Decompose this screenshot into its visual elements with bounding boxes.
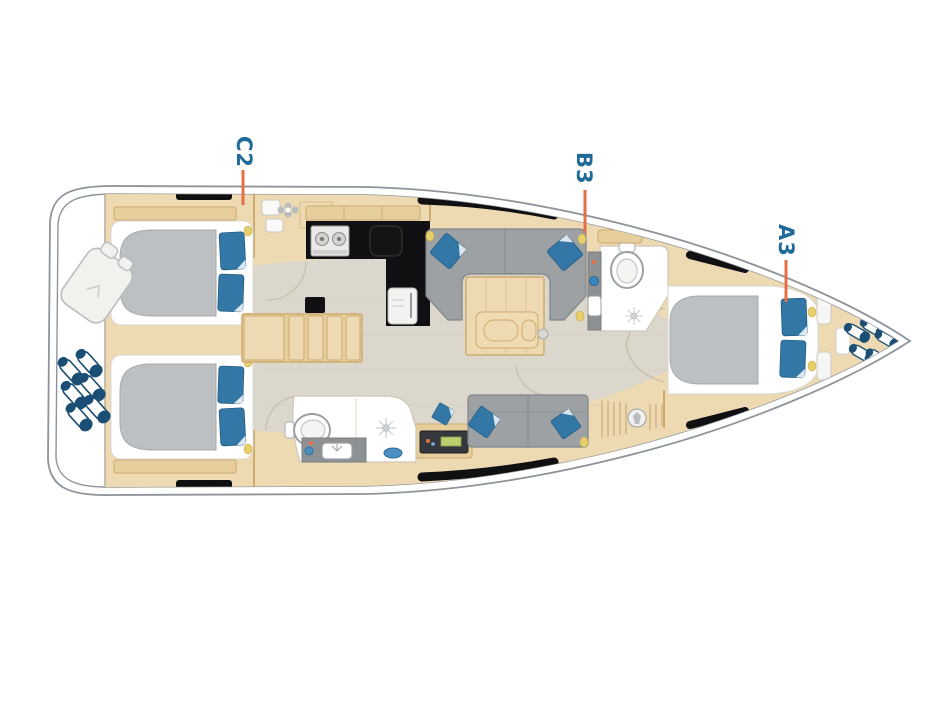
lamp-icon <box>576 311 584 321</box>
fridge-icon <box>388 288 417 324</box>
reading-lamp-icon <box>244 226 252 236</box>
yacht-deck-plan-figure: C2 B3 A3 <box>0 0 947 710</box>
mattress <box>120 230 216 316</box>
nav-instruments-icon <box>420 431 468 453</box>
nightstand <box>817 352 831 380</box>
pillow <box>781 298 807 336</box>
companionway-stairs-icon <box>242 314 362 362</box>
cabin-label-text: B3 <box>572 152 596 185</box>
builder-emblem-icon <box>628 409 646 427</box>
pillow <box>219 232 246 270</box>
reading-lamp-icon <box>808 307 816 317</box>
shower-drain-icon <box>376 418 396 438</box>
locker <box>114 460 236 473</box>
pillow <box>219 408 246 446</box>
cabin-label-text: A3 <box>774 224 798 257</box>
lamp-icon <box>580 437 588 447</box>
sink-icon <box>370 226 402 256</box>
washbasin-icon <box>588 296 601 316</box>
galley-locker <box>306 206 420 220</box>
yacht-deck-plan: C2 B3 A3 <box>0 0 947 710</box>
shower-drain-icon <box>625 307 643 325</box>
stove-icon <box>311 226 349 256</box>
shower-head-icon <box>384 448 402 458</box>
compression-post <box>305 297 325 313</box>
reading-lamp-icon <box>244 444 252 454</box>
pillow <box>218 366 244 404</box>
lamp-icon <box>426 231 434 241</box>
pillow <box>780 340 806 378</box>
aft-cabin-port <box>111 355 253 473</box>
mattress <box>120 364 216 450</box>
lamp-icon <box>578 234 586 244</box>
salon-table <box>466 277 548 355</box>
pillow <box>218 274 244 312</box>
mattress <box>670 296 758 384</box>
head-port <box>285 396 416 462</box>
locker <box>114 207 236 220</box>
reading-lamp-icon <box>808 361 816 371</box>
cabin-label-text: C2 <box>232 136 256 168</box>
